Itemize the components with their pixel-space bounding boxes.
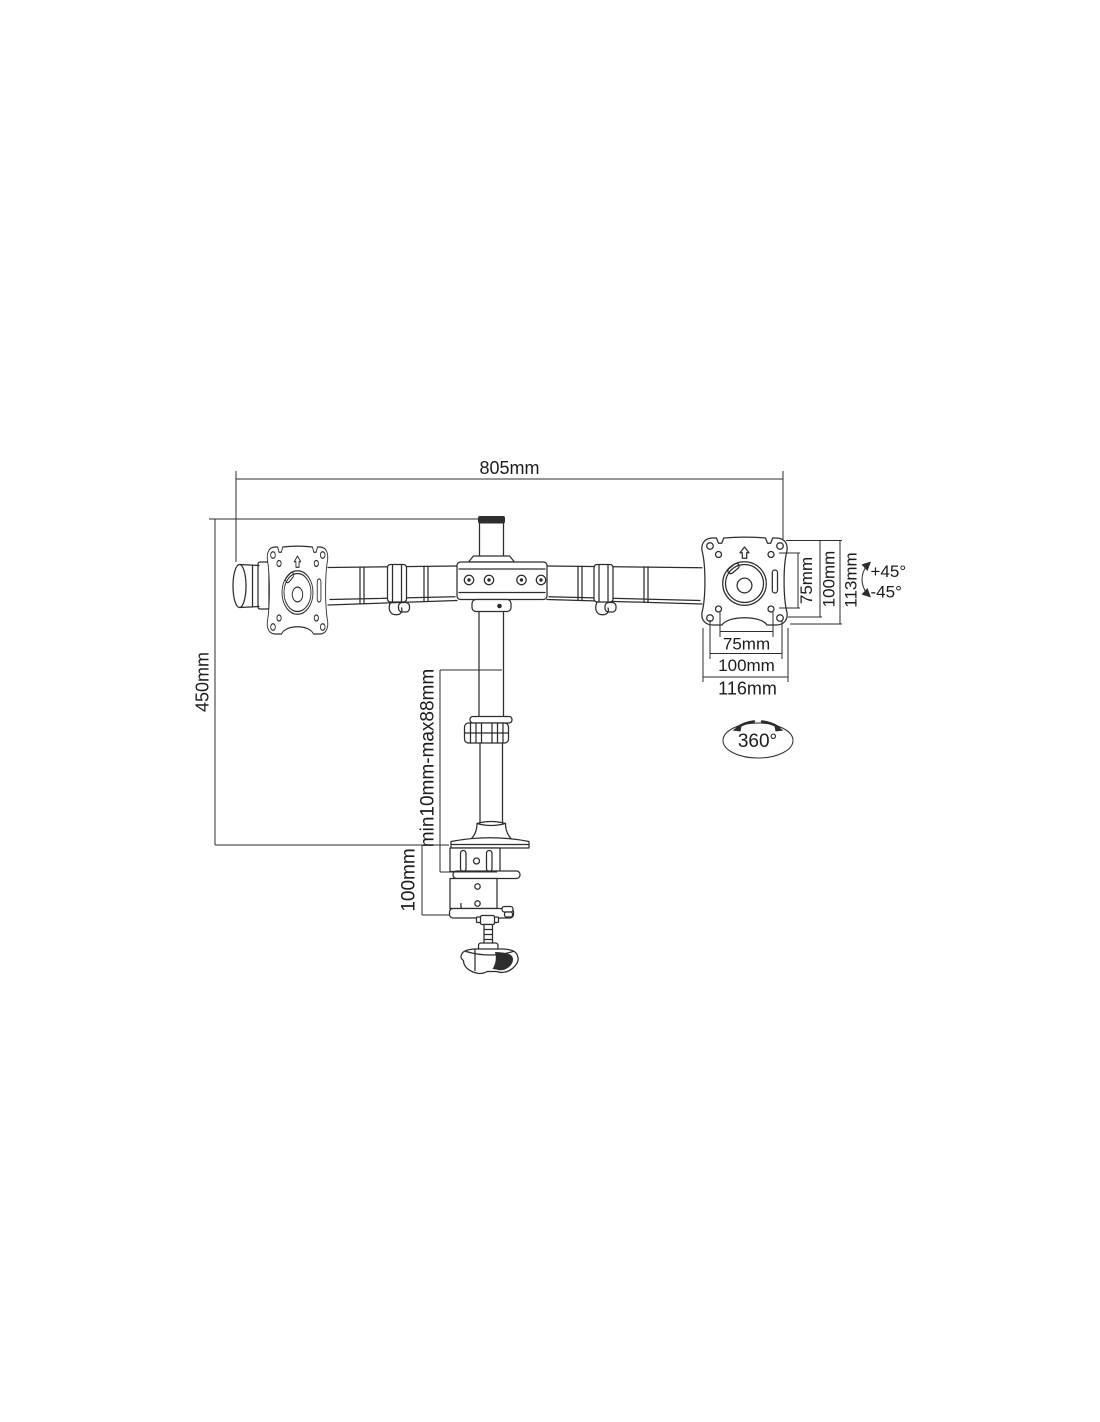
label-tilt-down: -45°: [871, 583, 902, 602]
label-clamp-range: min10mm-max88mm: [418, 669, 439, 847]
right-vesa-plate: [702, 537, 787, 625]
label-pole-height: 450mm: [193, 652, 213, 712]
label-plate-width: 116mm: [718, 679, 777, 699]
technical-drawing: 805mm 450mm min10mm-max88mm 100mm 75mm 1…: [0, 0, 1100, 1422]
label-vesa-horizontal-inner: 75mm: [723, 635, 770, 654]
monitor-arm-drawing: [233, 516, 787, 974]
dimension-clamp-height: 100mm: [399, 845, 450, 915]
cable-clip: [594, 565, 616, 615]
tilt-annotation: +45° -45°: [862, 562, 907, 602]
dimension-annotations: 805mm 450mm min10mm-max88mm 100mm 75mm 1…: [193, 458, 907, 915]
label-arm-width: 805mm: [479, 458, 539, 478]
height-adjust-ring: [465, 723, 509, 743]
label-clamp-height: 100mm: [399, 848, 420, 911]
label-vesa-horizontal-outer: 100mm: [718, 656, 775, 675]
arm-end-cap: [233, 562, 269, 609]
left-vesa-plate: [267, 546, 328, 634]
label-tilt-up: +45°: [871, 562, 907, 581]
label-plate-height: 113mm: [842, 552, 861, 607]
rotation-annotation: 360°: [723, 722, 793, 759]
label-vesa-vertical-outer: 100mm: [820, 551, 839, 608]
clamp-screw: [477, 916, 499, 951]
cable-clip: [388, 565, 410, 615]
drawing-canvas: 805mm 450mm min10mm-max88mm 100mm 75mm 1…: [0, 0, 1100, 1422]
pole-top-cap: [478, 516, 505, 524]
label-rotation: 360°: [738, 731, 777, 752]
center-pole: [457, 516, 547, 841]
label-vesa-vertical-inner: 75mm: [797, 557, 816, 604]
clamp-knob: [461, 949, 518, 974]
desk-clamp: [450, 838, 530, 974]
